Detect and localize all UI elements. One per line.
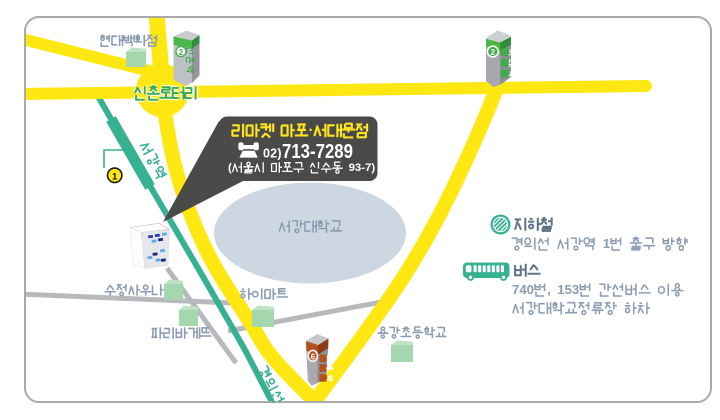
svg-text:1: 1 — [112, 171, 118, 182]
svg-text:,: , — [547, 282, 551, 297]
svg-text:153: 153 — [557, 282, 579, 297]
svg-text:·: · — [309, 123, 314, 139]
svg-text:(: ( — [228, 162, 232, 174]
svg-text:1: 1 — [603, 236, 610, 251]
svg-text:6: 6 — [311, 352, 316, 361]
svg-text:2: 2 — [179, 48, 184, 57]
svg-text:740: 740 — [512, 282, 534, 297]
svg-text:02): 02) — [263, 147, 282, 161]
svg-text:713-7289: 713-7289 — [282, 141, 353, 163]
svg-text:2: 2 — [491, 48, 496, 57]
svg-text:93-7): 93-7) — [349, 162, 376, 174]
